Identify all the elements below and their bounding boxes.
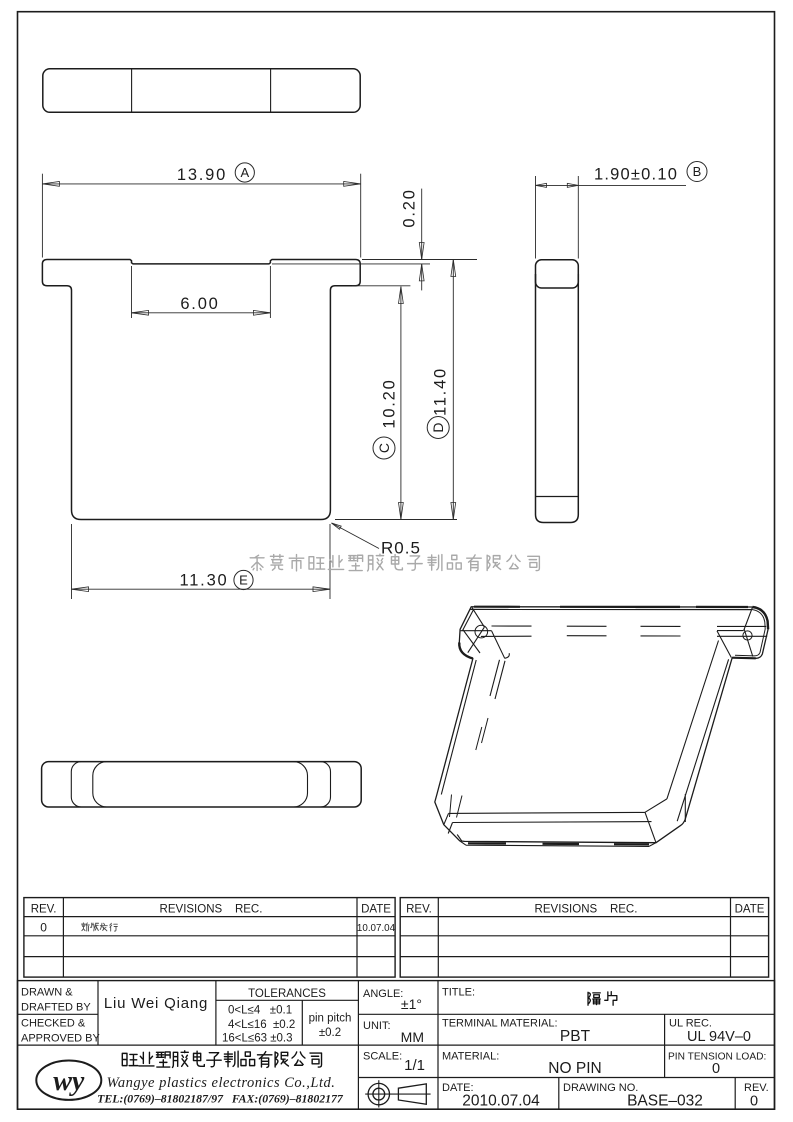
svg-text:A: A (240, 165, 249, 180)
svg-text:2010.07.04: 2010.07.04 (462, 1093, 540, 1110)
svg-text:pin pitch: pin pitch (309, 1013, 352, 1025)
svg-text:ANGLE:: ANGLE: (363, 988, 403, 1000)
svg-text:0<L≤4 ±0.1: 0<L≤4 ±0.1 (228, 1005, 292, 1017)
svg-text:APPROVED BY: APPROVED BY (21, 1033, 101, 1045)
svg-text:BASE–032: BASE–032 (627, 1093, 703, 1110)
svg-text:TITLE:: TITLE: (442, 987, 475, 999)
svg-text:±0.2: ±0.2 (319, 1027, 341, 1039)
svg-text:0: 0 (40, 921, 47, 935)
svg-text:NO PIN: NO PIN (548, 1060, 601, 1077)
svg-text:16<L≤63 ±0.3: 16<L≤63 ±0.3 (222, 1033, 293, 1045)
svg-text:Wangye plastics electronics Co: Wangye plastics electronics Co.,Ltd. (107, 1075, 336, 1091)
svg-text:11.40: 11.40 (432, 367, 450, 416)
svg-text:10.07.04: 10.07.04 (357, 923, 396, 934)
svg-text:REVISIONS REC.: REVISIONS REC. (535, 904, 638, 916)
svg-text:wy: wy (53, 1066, 85, 1097)
svg-text:REVISIONS REC.: REVISIONS REC. (160, 904, 263, 916)
svg-text:0: 0 (750, 1094, 758, 1110)
svg-text:13.90: 13.90 (177, 166, 227, 184)
svg-text:0: 0 (712, 1061, 720, 1077)
svg-text:MM: MM (401, 1029, 424, 1045)
svg-text:6.00: 6.00 (180, 295, 219, 313)
svg-text:DATE: DATE (361, 904, 391, 916)
svg-text:0.20: 0.20 (400, 188, 418, 227)
svg-text:4<L≤16 ±0.2: 4<L≤16 ±0.2 (228, 1019, 295, 1031)
svg-text:Liu Wei Qiang: Liu Wei Qiang (104, 995, 208, 1012)
svg-text:11.30: 11.30 (179, 572, 228, 590)
svg-text:R0.5: R0.5 (381, 539, 421, 558)
svg-text:DATE: DATE (735, 904, 765, 916)
svg-text:MATERIAL:: MATERIAL: (442, 1051, 499, 1063)
svg-text:TOLERANCES: TOLERANCES (248, 988, 326, 1000)
svg-text:TERMINAL MATERIAL:: TERMINAL MATERIAL: (442, 1018, 558, 1030)
svg-text:REV.: REV. (744, 1082, 769, 1094)
svg-text:SCALE:: SCALE: (363, 1051, 402, 1063)
svg-text:D: D (430, 422, 446, 432)
svg-text:C: C (376, 443, 392, 453)
svg-text:1/1: 1/1 (404, 1057, 425, 1074)
svg-text:UL 94V–0: UL 94V–0 (687, 1029, 751, 1045)
svg-text:TEL:(0769)–81802187/97 FAX:(: TEL:(0769)–81802187/97 FAX:(0769)–818021… (97, 1092, 344, 1106)
svg-text:10.20: 10.20 (381, 378, 399, 428)
svg-text:DRAFTED BY: DRAFTED BY (21, 1002, 91, 1014)
svg-text:CHECKED &: CHECKED & (21, 1018, 86, 1030)
svg-text:PBT: PBT (560, 1028, 591, 1045)
svg-text:UNIT:: UNIT: (363, 1020, 391, 1032)
svg-text:REV.: REV. (31, 904, 57, 916)
svg-text:1.90±0.10: 1.90±0.10 (594, 166, 678, 184)
svg-text:UL REC.: UL REC. (669, 1018, 712, 1030)
svg-text:DRAWN &: DRAWN & (21, 987, 73, 999)
svg-text:±1°: ±1° (401, 996, 422, 1012)
svg-text:REV.: REV. (406, 904, 432, 916)
svg-text:E: E (239, 573, 248, 588)
svg-text:B: B (693, 164, 702, 179)
